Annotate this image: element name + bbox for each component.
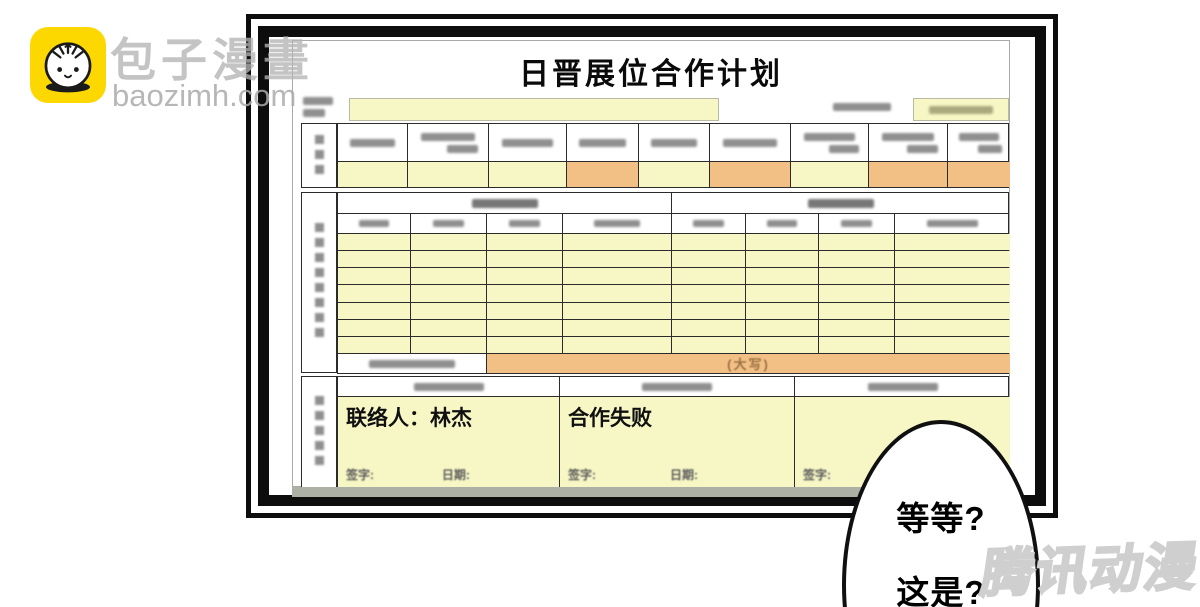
strip-cell-orange — [710, 162, 791, 187]
body-cell-empty — [672, 251, 746, 267]
body-cell-empty — [487, 320, 563, 336]
body-cell-empty — [672, 337, 746, 353]
baozi-face-drawing — [30, 27, 106, 103]
strip-cell-yellow — [791, 162, 869, 187]
header-cell-blurred — [869, 124, 948, 161]
body-cell-empty — [672, 303, 746, 319]
body-cell-empty — [819, 337, 895, 353]
body-cell-empty — [338, 320, 411, 336]
body-cell-empty — [895, 268, 1010, 284]
sub-header-cell-blurred — [895, 214, 1010, 233]
section-header-cell-blurred — [795, 377, 1010, 396]
row-group-label-2 — [301, 192, 337, 373]
table-row — [338, 303, 1008, 320]
body-cell-empty — [338, 285, 411, 301]
body-cell-empty — [563, 251, 672, 267]
body-cell-empty — [338, 268, 411, 284]
body-grid — [337, 233, 1009, 354]
body-cell-empty — [411, 285, 487, 301]
total-amount-cell: (大写) — [487, 354, 1010, 373]
form-title: 日晋展位合作计划 — [293, 49, 1009, 93]
logo-domain-text: baozimh.com — [112, 78, 296, 114]
header-cell-blurred — [408, 124, 489, 161]
header-cell-blurred — [791, 124, 869, 161]
form-no-label-blurred — [303, 97, 337, 117]
body-cell-empty — [672, 268, 746, 284]
body-cell-empty — [819, 303, 895, 319]
date-value-field — [913, 98, 1009, 121]
body-cell-empty — [819, 251, 895, 267]
body-cell-empty — [746, 320, 819, 336]
row-group-label-3 — [301, 376, 337, 488]
body-cell-empty — [563, 285, 672, 301]
body-cell-empty — [563, 320, 672, 336]
body-cell-empty — [746, 337, 819, 353]
body-cell-empty — [411, 234, 487, 250]
header-cell-blurred — [639, 124, 710, 161]
body-cell-empty — [746, 234, 819, 250]
body-cell-empty — [411, 303, 487, 319]
group-header-row — [337, 192, 1009, 214]
body-cell-empty — [487, 337, 563, 353]
body-cell-empty — [563, 337, 672, 353]
body-cell-empty — [746, 268, 819, 284]
body-cell-empty — [411, 320, 487, 336]
row-group-label-1 — [301, 123, 337, 188]
table-row — [338, 268, 1008, 285]
header-cell-blurred — [338, 124, 408, 161]
sub-header-cell-blurred — [672, 214, 746, 233]
form-document: 日晋展位合作计划 (大写) 联络人：林杰签字 — [292, 40, 1010, 487]
strip-cell-yellow — [408, 162, 489, 187]
body-cell-empty — [819, 268, 895, 284]
body-cell-empty — [895, 320, 1010, 336]
date-value-blurred — [929, 106, 993, 114]
body-cell-empty — [895, 285, 1010, 301]
table-row — [338, 337, 1008, 353]
body-cell-empty — [746, 303, 819, 319]
body-cell-empty — [672, 320, 746, 336]
body-cell-empty — [895, 251, 1010, 267]
capital-amount-hint: (大写) — [727, 354, 770, 373]
section-header-cell-blurred — [338, 377, 560, 396]
body-cell-empty — [487, 234, 563, 250]
body-cell-empty — [819, 320, 895, 336]
table-row — [338, 234, 1008, 251]
form-no-input-field — [349, 98, 719, 121]
body-cell-empty — [563, 303, 672, 319]
body-cell-empty — [819, 234, 895, 250]
body-cell-empty — [895, 234, 1010, 250]
sub-header-cell-blurred — [487, 214, 563, 233]
strip-cell-yellow — [489, 162, 567, 187]
body-cell-empty — [819, 285, 895, 301]
table-row — [338, 285, 1008, 302]
body-cell-empty — [338, 251, 411, 267]
group-header-right-blurred — [672, 193, 1010, 213]
header-row — [337, 123, 1009, 162]
date-label-blurred — [833, 103, 891, 111]
sub-header-cell-blurred — [819, 214, 895, 233]
total-label-cell-blurred — [338, 354, 487, 373]
body-cell-empty — [487, 268, 563, 284]
body-cell-empty — [338, 337, 411, 353]
body-cell-empty — [895, 337, 1010, 353]
header-cell-blurred — [710, 124, 791, 161]
bottom-cell-text: 合作失败 — [568, 402, 652, 432]
body-cell-empty — [338, 303, 411, 319]
date-label: 日期: — [670, 466, 698, 483]
sign-label: 签字: — [568, 466, 596, 483]
sign-label: 签字: — [346, 466, 374, 483]
bubble-line-1: 等等? — [896, 492, 985, 540]
body-cell-empty — [487, 251, 563, 267]
bottom-cell-2: 合作失败签字:日期: — [560, 397, 795, 487]
body-cell-empty — [672, 285, 746, 301]
header-cell-blurred — [489, 124, 567, 161]
body-cell-empty — [746, 285, 819, 301]
bottom-cell-text: 联络人：林杰 — [346, 402, 472, 432]
body-cell-empty — [672, 234, 746, 250]
table-row — [338, 320, 1008, 337]
bubble-line-2: 这是? — [896, 566, 985, 607]
body-cell-empty — [563, 268, 672, 284]
sign-label: 签字: — [803, 466, 831, 483]
section-header-cell-blurred — [560, 377, 795, 396]
table-row — [338, 251, 1008, 268]
body-cell-empty — [487, 285, 563, 301]
sub-header-cell-blurred — [338, 214, 411, 233]
body-cell-empty — [411, 337, 487, 353]
date-label: 日期: — [442, 466, 470, 483]
sub-header-cell-blurred — [563, 214, 672, 233]
body-cell-empty — [411, 251, 487, 267]
strip-cell-orange — [869, 162, 948, 187]
sub-header-row — [337, 213, 1009, 234]
header-cell-blurred — [567, 124, 639, 161]
body-cell-empty — [338, 234, 411, 250]
header-cell-blurred — [948, 124, 1010, 161]
bottom-cell-1: 联络人：林杰签字:日期: — [338, 397, 560, 487]
section-header-row — [337, 376, 1009, 397]
body-cell-empty — [746, 251, 819, 267]
comic-page: 包子漫畫 baozimh.com 日晋展位合作计划 — [0, 0, 1200, 607]
sub-header-cell-blurred — [746, 214, 819, 233]
sub-header-cell-blurred — [411, 214, 487, 233]
group-header-left-blurred — [338, 193, 672, 213]
total-row: (大写) — [337, 353, 1009, 374]
body-cell-empty — [487, 303, 563, 319]
body-cell-empty — [895, 303, 1010, 319]
strip-cell-orange — [948, 162, 1010, 187]
tencent-comics-watermark: 腾讯动漫 — [977, 524, 1200, 606]
strip-cell-yellow — [338, 162, 408, 187]
baozi-icon — [30, 27, 106, 103]
body-cell-empty — [411, 268, 487, 284]
body-cell-empty — [563, 234, 672, 250]
strip-cell-orange — [567, 162, 639, 187]
colored-strip-row — [337, 161, 1009, 188]
strip-cell-yellow — [639, 162, 710, 187]
